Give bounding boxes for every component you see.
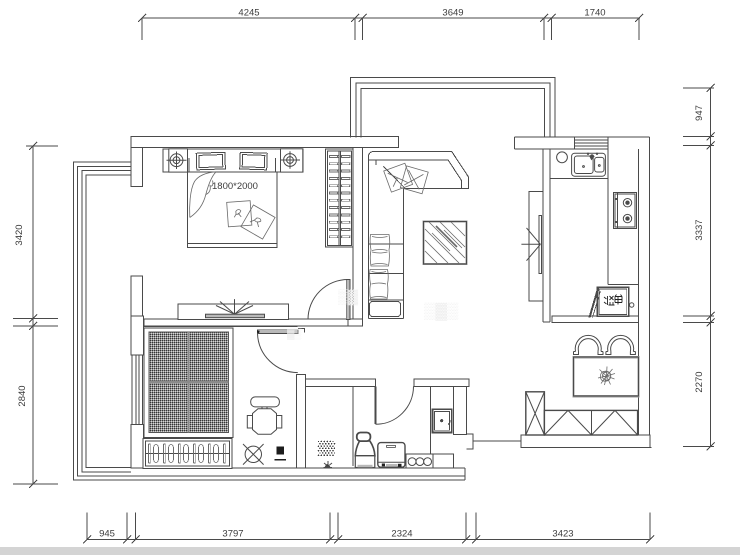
svg-text:▒▓▒: ▒▓▒ <box>424 302 459 321</box>
svg-text:▓▒: ▓▒ <box>287 328 302 340</box>
svg-text:3420: 3420 <box>14 224 25 245</box>
svg-text:1740: 1740 <box>584 8 605 19</box>
svg-text:3423: 3423 <box>552 529 573 540</box>
svg-text:947: 947 <box>694 105 705 121</box>
svg-text:▒▓: ▒▓ <box>338 288 359 306</box>
svg-text:2270: 2270 <box>694 371 705 392</box>
svg-text:2840: 2840 <box>17 385 28 406</box>
svg-text:3797: 3797 <box>222 529 243 540</box>
svg-text:1800*2000: 1800*2000 <box>212 181 258 192</box>
svg-text:4245: 4245 <box>238 8 259 19</box>
svg-text:945: 945 <box>99 529 115 540</box>
svg-text:2324: 2324 <box>391 529 412 540</box>
svg-text:3337: 3337 <box>694 219 705 240</box>
svg-text:3649: 3649 <box>442 8 463 19</box>
